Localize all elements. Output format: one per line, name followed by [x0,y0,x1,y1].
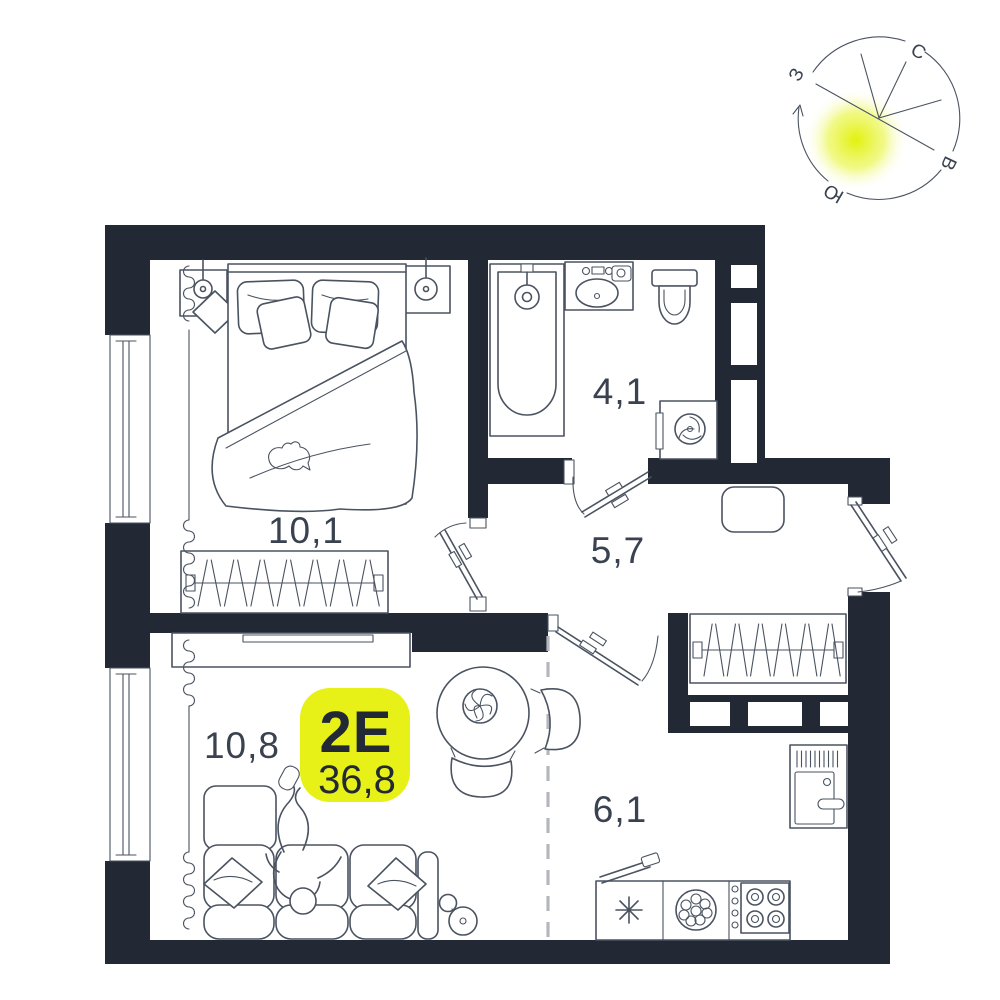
compass-north: С [907,39,929,64]
bedroom-wardrobe [181,551,388,613]
compass-west: З [785,65,809,85]
hallway-area-label: 5,7 [591,530,645,571]
curtain-line [184,852,195,929]
sink-light-symbol [616,897,642,923]
apartment-badge: 2Е 36,8 [300,688,410,802]
entrance-door [848,497,906,596]
bathroom-fixtures [490,262,717,459]
compass-rose: С В Ю З [785,37,960,207]
bedroom-window [110,335,150,523]
double-bed [212,264,417,511]
kitchen-furniture [596,745,847,940]
washing-machine [656,401,717,459]
floor-plan: С В Ю З [0,0,1000,1000]
apartment-total-area: 36,8 [318,758,396,802]
bathtub [490,264,564,436]
kitchen-area-label: 6,1 [593,789,647,830]
compass-east: В [936,153,960,173]
plant [463,689,497,723]
living-area-label: 10,8 [204,725,280,766]
living-room-door [548,615,658,685]
stove [732,883,789,933]
sun-glow [804,88,908,192]
toilet [652,270,697,324]
bathroom-area-label: 4,1 [593,371,647,412]
bedroom-area-label: 10,1 [268,510,344,551]
kitchen-counter [596,852,790,940]
bedroom-furniture [180,258,450,613]
hall-wardrobe [690,614,846,683]
faucet [600,852,660,883]
hallway-items [690,487,846,683]
living-room-window [110,668,150,861]
bathroom-door [564,460,651,517]
round-sink [676,890,716,930]
fridge [790,745,847,828]
tv-stand [172,633,410,667]
floor-lamp [440,895,478,936]
chair [531,689,580,753]
bedroom-door [435,518,486,611]
hall-rug [722,487,784,532]
nightstand-right [402,258,450,313]
dining-table [437,667,580,797]
apartment-type-label: 2Е [320,700,393,765]
bathroom-sink [565,262,633,310]
